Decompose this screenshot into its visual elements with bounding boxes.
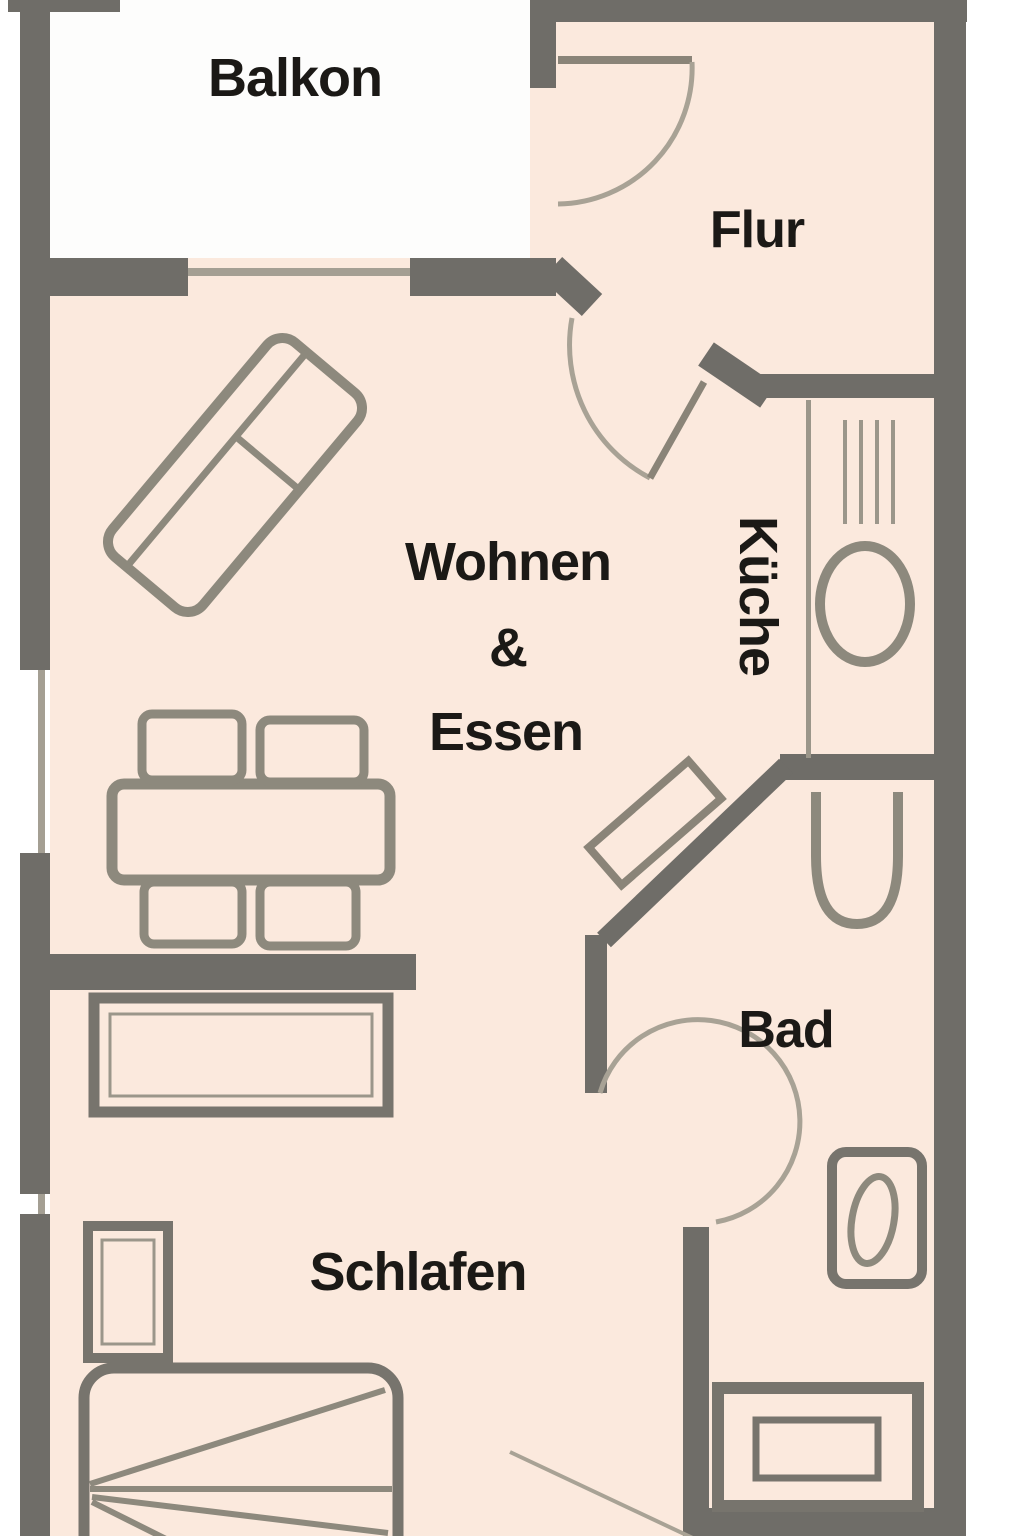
balcony-wall-right [410,258,556,296]
bathroom-label: Bad [738,1001,833,1059]
floor-plan-canvas: Balkon Flur Wohnen & Essen Küche Bad Sch… [0,0,1024,1536]
bedroom-window-icon [38,1194,45,1214]
balcony-floor-area [50,0,530,258]
top-wall [543,0,967,22]
balcony-hall-divider-wall [530,0,556,88]
right-wall [934,0,966,1536]
kitchen-label: Küche [728,516,788,676]
living-window-icon [38,670,45,853]
living-label-line1: Wohnen [405,532,611,592]
balcony-wall-left [50,258,188,296]
balcony-door-window-icon [188,268,410,276]
living-label-line3: Essen [429,702,583,762]
bedroom-bath-wall [683,1227,709,1536]
hallway-label: Flur [710,201,805,259]
left-wall-upper [20,0,50,670]
kitchen-top-wall [756,374,934,398]
bedroom-label: Schlafen [309,1242,526,1302]
hallway-floor-sliver [530,88,556,258]
balcony-label: Balkon [208,48,382,108]
living-bedroom-wall [50,954,416,990]
floor-plan: Balkon Flur Wohnen & Essen Küche Bad Sch… [0,0,1024,1536]
kitchen-bottom-wall [780,754,934,780]
bath-door-wall-stub [585,935,607,1093]
living-label-line2: & [489,618,527,678]
left-wall-lower [20,1214,50,1536]
kitchen-counter-edge-icon [806,400,811,758]
bath-bottom-wall [697,1508,934,1536]
balcony-top-wall-stub [8,0,120,12]
left-wall-middle [20,853,50,1194]
